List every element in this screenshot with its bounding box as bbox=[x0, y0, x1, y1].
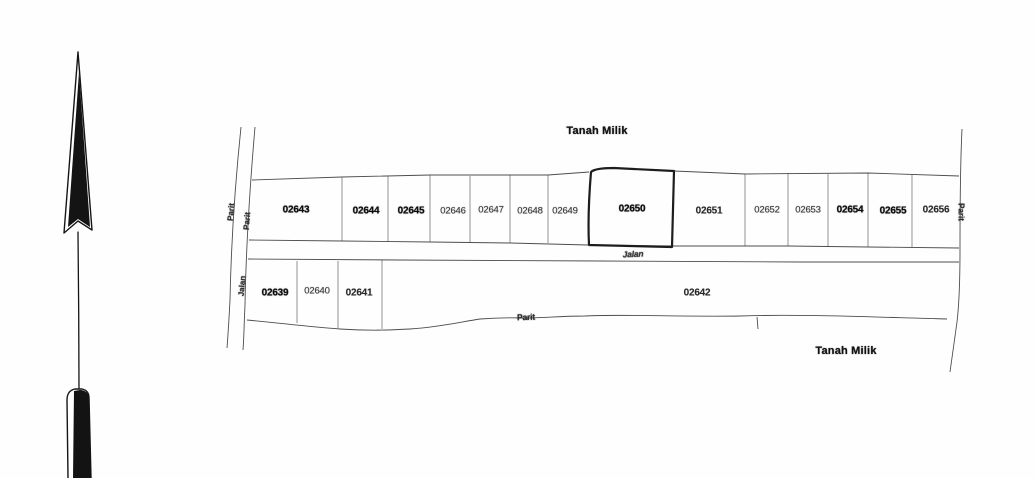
parit-right-label: Parit bbox=[957, 203, 966, 221]
plot-02642-label: 02642 bbox=[684, 288, 711, 299]
plot-02640-label: 02640 bbox=[304, 286, 329, 297]
plot-02643-label: 02643 bbox=[283, 205, 310, 216]
jalan-road-label: Jalan bbox=[622, 248, 643, 259]
plot-02646-label: 02646 bbox=[440, 206, 465, 217]
plot-02648-label: 02648 bbox=[517, 206, 542, 217]
plot-02647-label: 02647 bbox=[478, 205, 503, 216]
plot-02652-label: 02652 bbox=[754, 205, 779, 216]
plot-02653-label: 02653 bbox=[795, 205, 820, 216]
north-arrow-icon bbox=[64, 52, 92, 478]
survey-linework bbox=[0, 0, 1035, 478]
plot-02644-label: 02644 bbox=[353, 206, 380, 217]
boundary-lines bbox=[227, 127, 962, 372]
parit-left-outer-label: Parit bbox=[226, 203, 237, 222]
plot-02650-label: 02650 bbox=[619, 204, 646, 215]
plot-02656-label: 02656 bbox=[923, 205, 950, 216]
cadastral-survey-map: Tanah Milik Tanah Milik Jalan Parit Pari… bbox=[0, 0, 1035, 478]
jalan-left-label: Jalan bbox=[237, 275, 248, 296]
tanah-milik-bottom-label: Tanah Milik bbox=[815, 345, 876, 357]
tanah-milik-top-label: Tanah Milik bbox=[566, 125, 627, 137]
plot-02639-label: 02639 bbox=[262, 288, 289, 299]
plot-02645-label: 02645 bbox=[398, 206, 425, 217]
plot-02641-label: 02641 bbox=[346, 288, 373, 299]
plot-02655-label: 02655 bbox=[880, 206, 907, 217]
plot-02654-label: 02654 bbox=[837, 205, 864, 216]
parit-left-inner-label: Parit bbox=[242, 212, 253, 231]
plot-02651-label: 02651 bbox=[696, 206, 723, 217]
plot-02649-label: 02649 bbox=[552, 206, 577, 217]
parit-bottom-label: Parit bbox=[517, 312, 535, 323]
